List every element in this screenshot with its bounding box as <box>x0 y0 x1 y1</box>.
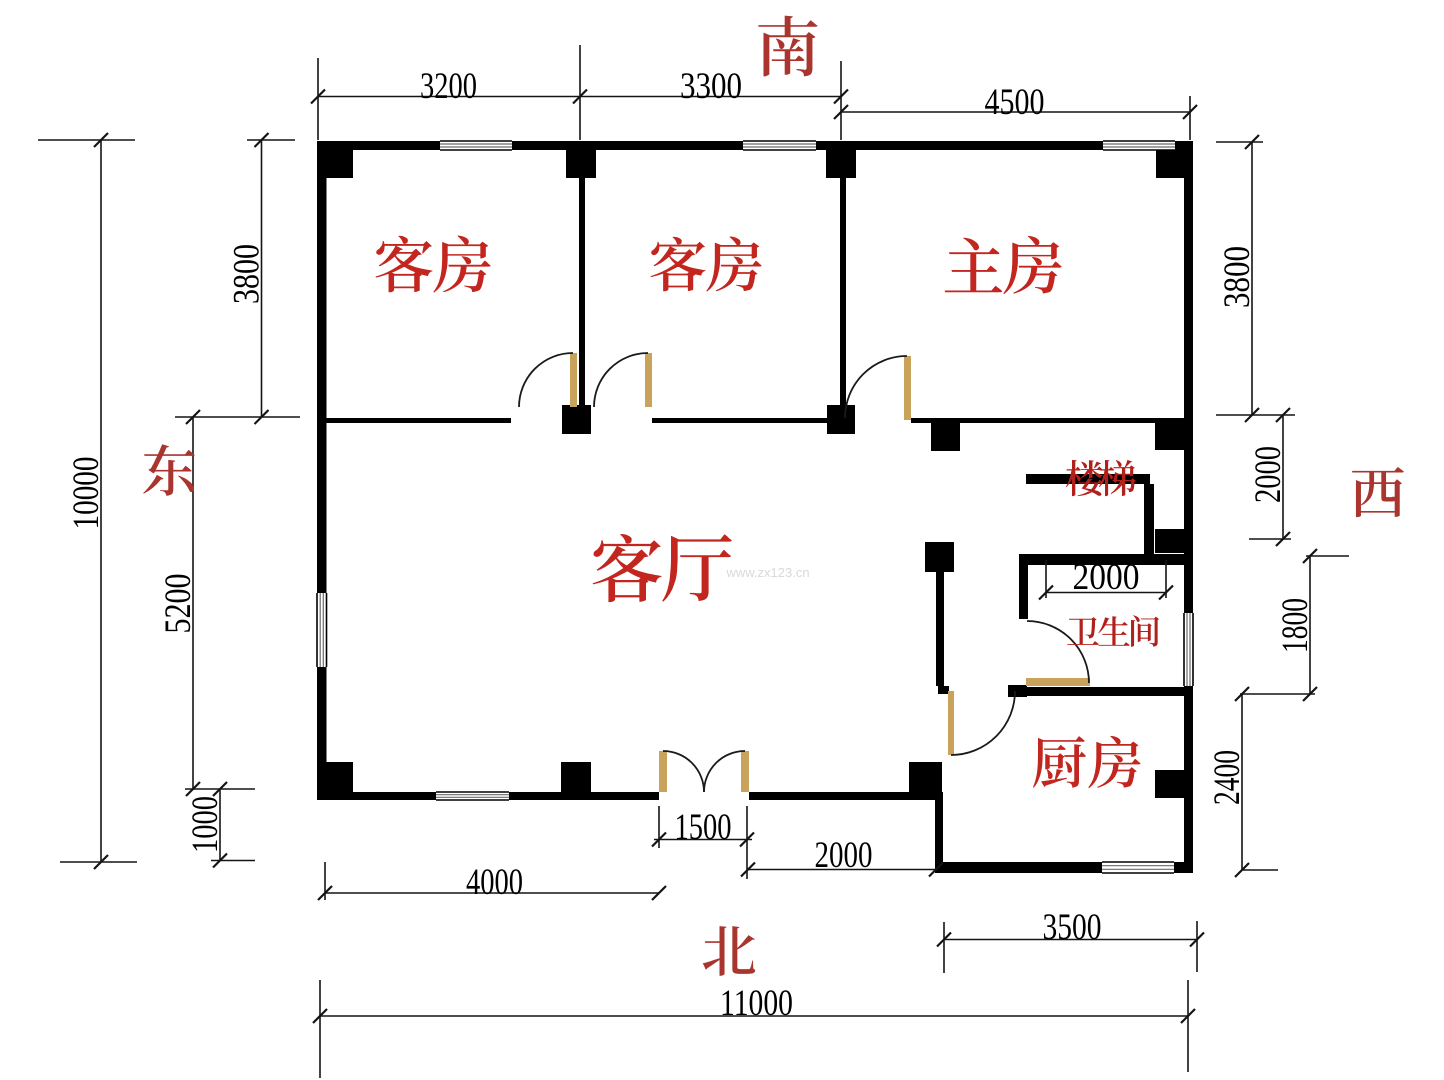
svg-text:3500: 3500 <box>1043 907 1102 948</box>
svg-text:2000: 2000 <box>815 835 873 876</box>
svg-text:1000: 1000 <box>185 796 226 853</box>
svg-text:5200: 5200 <box>158 574 199 634</box>
svg-text:2400: 2400 <box>1207 750 1248 805</box>
svg-text:3800: 3800 <box>1217 246 1258 308</box>
svg-text:1800: 1800 <box>1275 598 1316 653</box>
svg-text:1500: 1500 <box>675 807 732 848</box>
svg-text:4500: 4500 <box>985 82 1045 123</box>
svg-text:4000: 4000 <box>466 862 523 903</box>
svg-text:2000: 2000 <box>1248 446 1289 503</box>
svg-text:www.zx123.cn: www.zx123.cn <box>725 565 809 580</box>
svg-text:3800: 3800 <box>227 244 268 304</box>
svg-text:11000: 11000 <box>720 983 793 1024</box>
svg-text:3200: 3200 <box>420 66 477 107</box>
svg-text:2000: 2000 <box>1073 557 1140 598</box>
svg-text:10000: 10000 <box>66 457 107 530</box>
svg-text:3300: 3300 <box>680 66 742 107</box>
